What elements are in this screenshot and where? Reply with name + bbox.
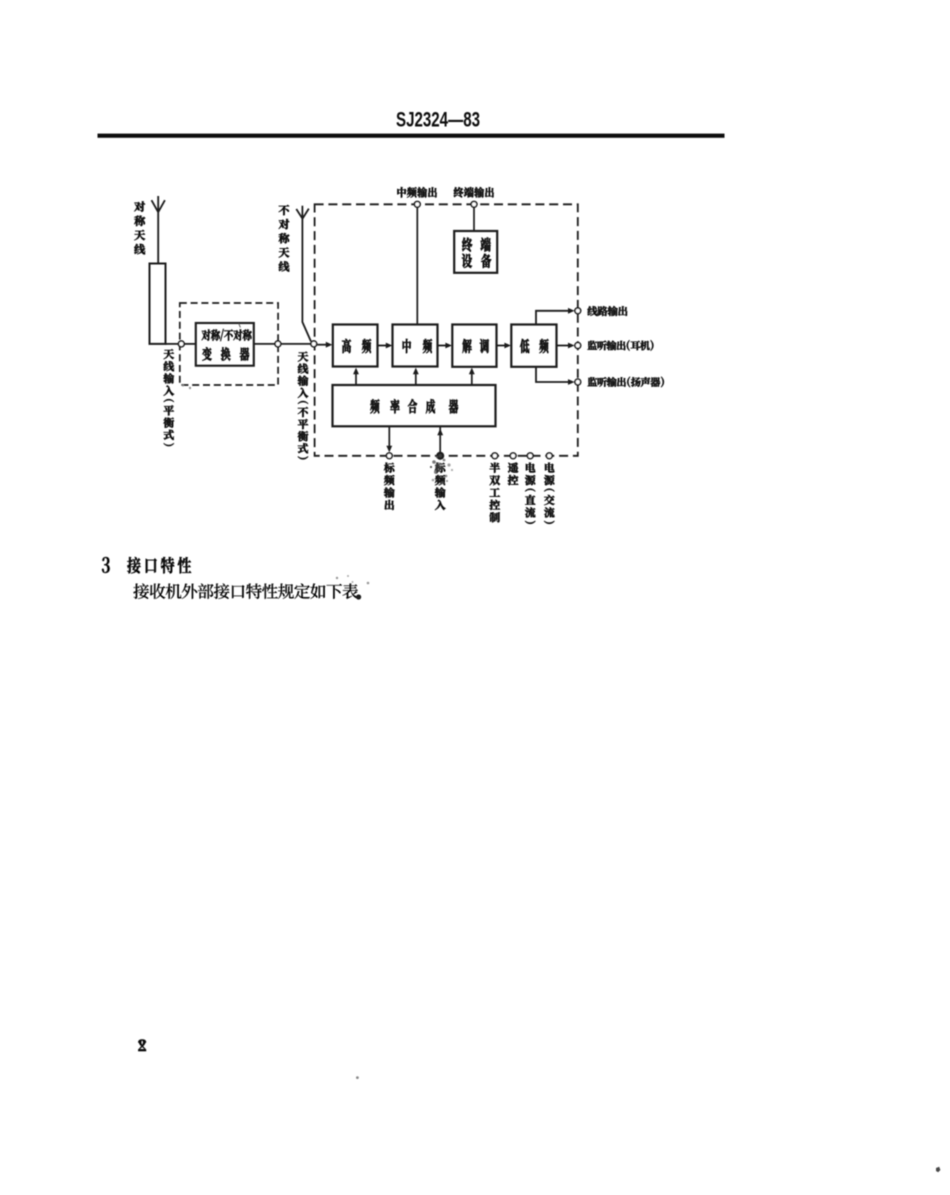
svg-text:SJ2324—83: SJ2324—83 (396, 109, 480, 132)
